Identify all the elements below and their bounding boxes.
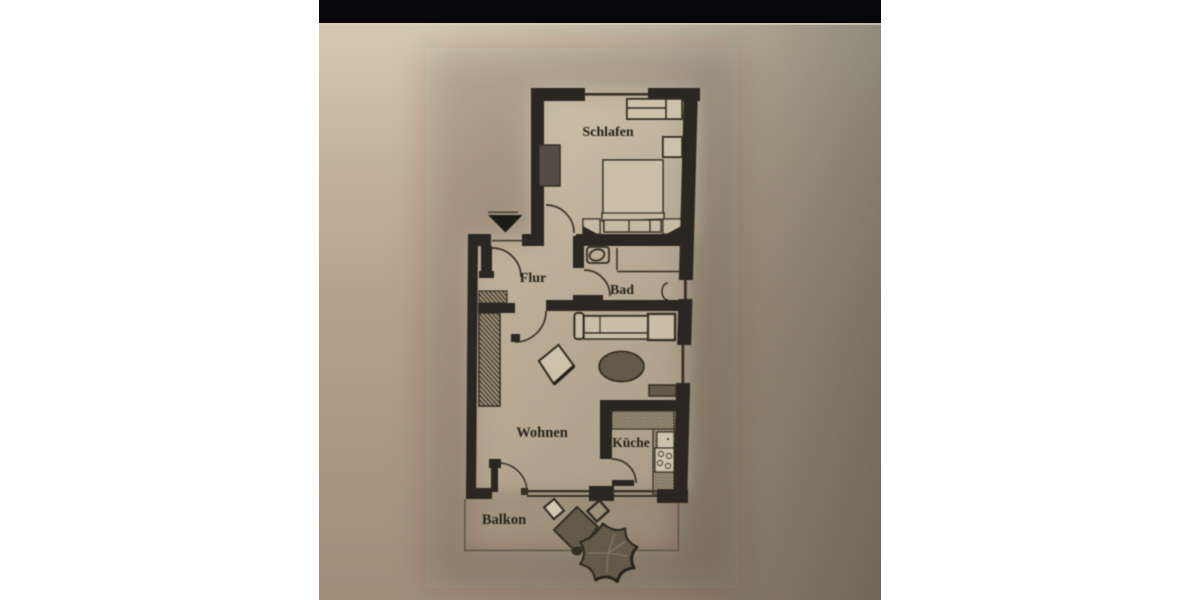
svg-text:Küche: Küche <box>612 435 650 450</box>
svg-text:Schlafen: Schlafen <box>582 125 634 140</box>
svg-text:Bad: Bad <box>610 283 634 298</box>
svg-text:Wohnen: Wohnen <box>516 425 568 441</box>
svg-text:Balkon: Balkon <box>482 512 526 528</box>
svg-text:Flur: Flur <box>520 271 546 286</box>
